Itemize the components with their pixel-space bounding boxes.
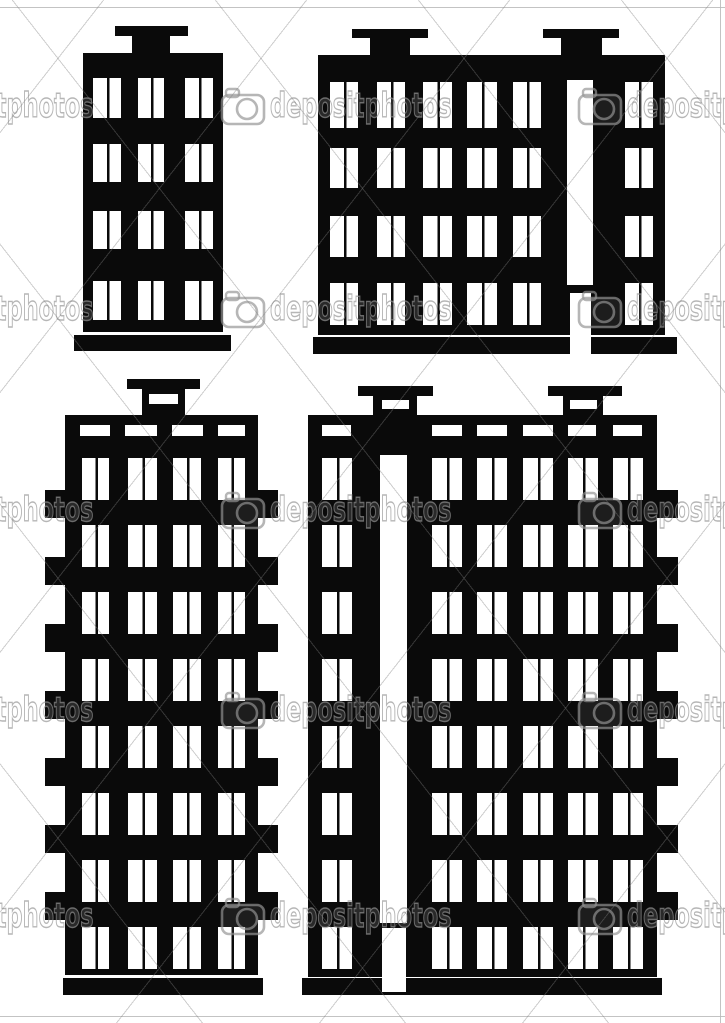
large-apartment-building-attic-vent bbox=[523, 425, 553, 436]
large-apartment-building-window bbox=[432, 860, 462, 902]
tall-apartment-building-right-balcony-bump bbox=[258, 892, 278, 920]
large-apartment-building-window bbox=[613, 458, 643, 500]
tall-apartment-building-window bbox=[173, 793, 201, 835]
tall-apartment-building-window bbox=[82, 592, 109, 634]
tall-apartment-building-window bbox=[128, 860, 157, 902]
tall-apartment-building-left-balcony-bump bbox=[45, 490, 65, 518]
tall-apartment-building-chimney-cap bbox=[127, 379, 200, 389]
large-apartment-building-window bbox=[523, 726, 553, 768]
tall-apartment-building-window bbox=[82, 927, 109, 969]
tall-apartment-building-right-balcony-bump bbox=[258, 490, 278, 518]
large-apartment-building-right-balcony-bump bbox=[657, 557, 678, 585]
large-apartment-building-window bbox=[568, 659, 598, 701]
wide-apartment-building-entrance-door bbox=[570, 293, 591, 355]
tall-apartment-building-left-balcony-bump bbox=[45, 557, 65, 585]
watermark-border-top bbox=[0, 7, 725, 8]
tall-apartment-building-window bbox=[128, 659, 157, 701]
camera-icon bbox=[220, 86, 266, 130]
small-apartment-building-window bbox=[93, 211, 121, 249]
large-apartment-building-attic-vent bbox=[613, 425, 642, 436]
tall-apartment-building-left-balcony-bump bbox=[45, 758, 65, 786]
large-apartment-building-chimney-cap bbox=[548, 386, 622, 396]
tall-apartment-building-right-balcony-bump bbox=[258, 825, 278, 853]
large-apartment-building-chimney-slot bbox=[382, 400, 409, 409]
tall-apartment-building-right-balcony-bump bbox=[258, 691, 278, 719]
large-apartment-building-window bbox=[477, 793, 507, 835]
wide-apartment-building-window bbox=[377, 216, 405, 257]
watermark-border-bottom bbox=[0, 1016, 725, 1017]
tall-apartment-building-window bbox=[173, 592, 201, 634]
large-apartment-building-right-balcony-bump bbox=[657, 691, 678, 719]
wide-apartment-building-chimney-stem bbox=[370, 38, 410, 55]
wide-apartment-building-window bbox=[625, 216, 653, 257]
large-apartment-building-window bbox=[523, 458, 553, 500]
small-apartment-building-window bbox=[138, 144, 164, 182]
tall-apartment-building-window bbox=[128, 458, 157, 500]
small-apartment-building-window bbox=[185, 211, 213, 249]
large-apartment-building-window bbox=[568, 927, 598, 969]
large-apartment-building-window bbox=[322, 927, 352, 969]
tall-apartment-building-base bbox=[63, 978, 263, 995]
tall-apartment-building-attic-vent bbox=[172, 425, 203, 436]
large-apartment-building-window bbox=[322, 860, 352, 902]
large-apartment-building-base bbox=[302, 978, 662, 995]
stock-illustration-canvas: depositphotosdepositphotosdepositphotosd… bbox=[0, 0, 725, 1023]
large-apartment-building-right-balcony-bump bbox=[657, 490, 678, 518]
large-apartment-building-right-balcony-bump bbox=[657, 758, 678, 786]
large-apartment-building-window bbox=[613, 793, 643, 835]
wide-apartment-building-window bbox=[377, 148, 405, 188]
large-apartment-building-chimney-slot bbox=[570, 400, 597, 409]
small-apartment-building-window bbox=[138, 78, 164, 118]
large-apartment-building-window bbox=[432, 726, 462, 768]
small-apartment-building-window bbox=[138, 211, 164, 249]
large-apartment-building-window bbox=[432, 592, 462, 634]
tall-apartment-building-window bbox=[218, 458, 245, 500]
tall-apartment-building-window bbox=[128, 525, 157, 567]
large-apartment-building-window bbox=[568, 592, 598, 634]
tall-apartment-building-attic-vent bbox=[218, 425, 245, 436]
wide-apartment-building-window bbox=[513, 283, 541, 325]
large-apartment-building-window bbox=[568, 860, 598, 902]
large-apartment-building-window bbox=[432, 525, 462, 567]
wide-apartment-building-window bbox=[625, 148, 653, 188]
wide-apartment-building-window bbox=[377, 283, 405, 325]
watermark-text: depositphotos bbox=[0, 289, 94, 329]
tall-apartment-building-attic-vent bbox=[80, 425, 110, 436]
tall-apartment-building-window bbox=[218, 860, 245, 902]
wide-apartment-building-chimney-cap bbox=[352, 29, 428, 38]
tall-apartment-building-window bbox=[218, 525, 245, 567]
tall-apartment-building-window bbox=[82, 525, 109, 567]
small-apartment-building-window bbox=[93, 281, 121, 320]
small-apartment-building-window bbox=[185, 281, 213, 320]
tall-apartment-building-window bbox=[173, 458, 201, 500]
large-apartment-building-window bbox=[613, 860, 643, 902]
large-apartment-building-window bbox=[523, 659, 553, 701]
large-apartment-building-window bbox=[477, 525, 507, 567]
large-apartment-building-window bbox=[322, 659, 352, 701]
tall-apartment-building-window bbox=[218, 927, 245, 969]
wide-apartment-building-window bbox=[467, 216, 497, 257]
large-apartment-building-window bbox=[432, 659, 462, 701]
tall-apartment-building-left-balcony-bump bbox=[45, 892, 65, 920]
large-apartment-building-window bbox=[477, 458, 507, 500]
wide-apartment-building-chimney-cap bbox=[543, 29, 619, 38]
tall-apartment-building-window bbox=[173, 525, 201, 567]
small-apartment-building-window bbox=[93, 144, 121, 182]
large-apartment-building-window bbox=[613, 659, 643, 701]
tall-apartment-building-window bbox=[128, 726, 157, 768]
wide-apartment-building-window bbox=[513, 82, 541, 128]
small-apartment-building-window bbox=[185, 144, 213, 182]
watermark-text: depositphotos bbox=[0, 86, 94, 126]
wide-apartment-building-stairwell-strip bbox=[567, 80, 593, 285]
tall-apartment-building-left-balcony-bump bbox=[45, 691, 65, 719]
tall-apartment-building-window bbox=[173, 659, 201, 701]
wide-apartment-building-window bbox=[467, 148, 497, 188]
large-apartment-building-window bbox=[523, 793, 553, 835]
tall-apartment-building-window bbox=[173, 860, 201, 902]
large-apartment-building-window bbox=[568, 726, 598, 768]
large-apartment-building-window bbox=[477, 659, 507, 701]
tall-apartment-building-right-balcony-bump bbox=[258, 624, 278, 652]
small-apartment-building-window bbox=[185, 78, 213, 118]
large-apartment-building-stairwell-strip bbox=[380, 455, 407, 923]
tall-apartment-building-attic-vent bbox=[125, 425, 157, 436]
tall-apartment-building-window bbox=[218, 592, 245, 634]
large-apartment-building-attic-vent bbox=[322, 425, 351, 436]
tall-apartment-building-window bbox=[128, 927, 157, 969]
large-apartment-building-window bbox=[523, 525, 553, 567]
wide-apartment-building-window bbox=[423, 283, 452, 325]
tall-apartment-building-window bbox=[128, 592, 157, 634]
large-apartment-building-window bbox=[523, 592, 553, 634]
tall-apartment-building-window bbox=[128, 793, 157, 835]
large-apartment-building-window bbox=[322, 458, 352, 500]
large-apartment-building-window bbox=[613, 726, 643, 768]
tall-apartment-building-window bbox=[82, 793, 109, 835]
wide-apartment-building-window bbox=[423, 148, 452, 188]
large-apartment-building-entrance-door bbox=[382, 928, 406, 992]
wide-apartment-building-window bbox=[513, 216, 541, 257]
large-apartment-building-window bbox=[568, 525, 598, 567]
tall-apartment-building-left-balcony-bump bbox=[45, 624, 65, 652]
tall-apartment-building-window bbox=[82, 659, 109, 701]
tall-apartment-building-window bbox=[82, 458, 109, 500]
large-apartment-building-right-balcony-bump bbox=[657, 892, 678, 920]
large-apartment-building-window bbox=[568, 458, 598, 500]
tall-apartment-building-window bbox=[218, 793, 245, 835]
large-apartment-building-window bbox=[432, 927, 462, 969]
large-apartment-building-window bbox=[322, 726, 352, 768]
small-apartment-building-window bbox=[93, 78, 121, 118]
small-apartment-building-chimney-stem bbox=[132, 36, 170, 53]
large-apartment-building-window bbox=[477, 726, 507, 768]
tall-apartment-building-left-balcony-bump bbox=[45, 825, 65, 853]
small-apartment-building-window bbox=[138, 281, 164, 320]
large-apartment-building-window bbox=[523, 927, 553, 969]
large-apartment-building-window bbox=[613, 927, 643, 969]
large-apartment-building-right-balcony-bump bbox=[657, 825, 678, 853]
wide-apartment-building-chimney-stem bbox=[561, 38, 602, 55]
wide-apartment-building-window bbox=[377, 82, 405, 128]
wide-apartment-building-window bbox=[625, 82, 653, 128]
tall-apartment-building-window bbox=[218, 726, 245, 768]
camera-icon bbox=[220, 289, 266, 333]
watermark-border-right bbox=[720, 0, 721, 1023]
small-apartment-building-chimney-cap bbox=[115, 26, 188, 36]
wide-apartment-building-window bbox=[423, 216, 452, 257]
wide-apartment-building-window bbox=[423, 82, 452, 128]
large-apartment-building-window bbox=[613, 525, 643, 567]
small-apartment-building-base bbox=[74, 335, 231, 351]
large-apartment-building-window bbox=[322, 525, 352, 567]
large-apartment-building-window bbox=[322, 793, 352, 835]
large-apartment-building-window bbox=[432, 793, 462, 835]
large-apartment-building-attic-vent bbox=[568, 425, 596, 436]
wide-apartment-building-window bbox=[467, 82, 497, 128]
large-apartment-building-window bbox=[477, 927, 507, 969]
large-apartment-building-window bbox=[432, 458, 462, 500]
wide-apartment-building-window bbox=[330, 283, 358, 325]
tall-apartment-building-window bbox=[218, 659, 245, 701]
large-apartment-building-window bbox=[613, 592, 643, 634]
large-apartment-building-chimney-cap bbox=[358, 386, 433, 396]
large-apartment-building-attic-vent bbox=[432, 425, 462, 436]
tall-apartment-building-window bbox=[173, 726, 201, 768]
wide-apartment-building-window bbox=[330, 148, 358, 188]
large-apartment-building-right-balcony-bump bbox=[657, 624, 678, 652]
large-apartment-building-attic-vent bbox=[477, 425, 507, 436]
large-apartment-building-window bbox=[523, 860, 553, 902]
tall-apartment-building-right-balcony-bump bbox=[258, 557, 278, 585]
tall-apartment-building-window bbox=[173, 927, 201, 969]
wide-apartment-building-window bbox=[467, 283, 497, 325]
large-apartment-building-window bbox=[477, 860, 507, 902]
tall-apartment-building-right-balcony-bump bbox=[258, 758, 278, 786]
tall-apartment-building-chimney-slot bbox=[149, 394, 178, 404]
wide-apartment-building-window bbox=[625, 283, 653, 325]
tall-apartment-building-window bbox=[82, 726, 109, 768]
tall-apartment-building-window bbox=[82, 860, 109, 902]
wide-apartment-building-base bbox=[313, 337, 677, 354]
wide-apartment-building-window bbox=[330, 82, 358, 128]
wide-apartment-building-window bbox=[513, 148, 541, 188]
wide-apartment-building-window bbox=[330, 216, 358, 257]
large-apartment-building-window bbox=[477, 592, 507, 634]
large-apartment-building-window bbox=[568, 793, 598, 835]
large-apartment-building-window bbox=[322, 592, 352, 634]
